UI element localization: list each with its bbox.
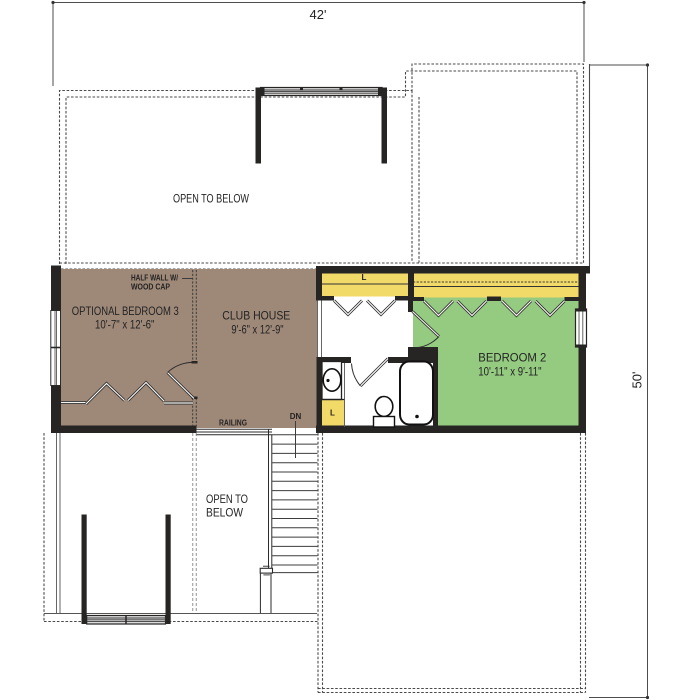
svg-text:L: L xyxy=(362,273,367,282)
svg-text:CLUB HOUSE: CLUB HOUSE xyxy=(222,309,290,323)
svg-text:9'-6" x 12'-9": 9'-6" x 12'-9" xyxy=(231,323,283,337)
svg-text:DN: DN xyxy=(290,412,302,421)
svg-text:WOOD CAP: WOOD CAP xyxy=(131,283,171,292)
svg-text:RAILING: RAILING xyxy=(219,419,247,428)
svg-text:42': 42' xyxy=(310,7,327,22)
svg-text:HALF WALL W/: HALF WALL W/ xyxy=(131,273,179,282)
svg-text:50': 50' xyxy=(630,372,645,389)
svg-text:BEDROOM 2: BEDROOM 2 xyxy=(478,350,546,364)
svg-text:OPTIONAL BEDROOM 3: OPTIONAL BEDROOM 3 xyxy=(72,304,179,318)
svg-text:10'-11" x 9'-11": 10'-11" x 9'-11" xyxy=(478,364,541,378)
svg-text:10'-7" x 12'-6": 10'-7" x 12'-6" xyxy=(95,317,155,331)
svg-text:BELOW: BELOW xyxy=(206,506,244,520)
svg-text:L: L xyxy=(330,409,335,418)
svg-text:OPEN TO BELOW: OPEN TO BELOW xyxy=(173,192,250,206)
svg-text:OPEN TO: OPEN TO xyxy=(206,492,248,506)
